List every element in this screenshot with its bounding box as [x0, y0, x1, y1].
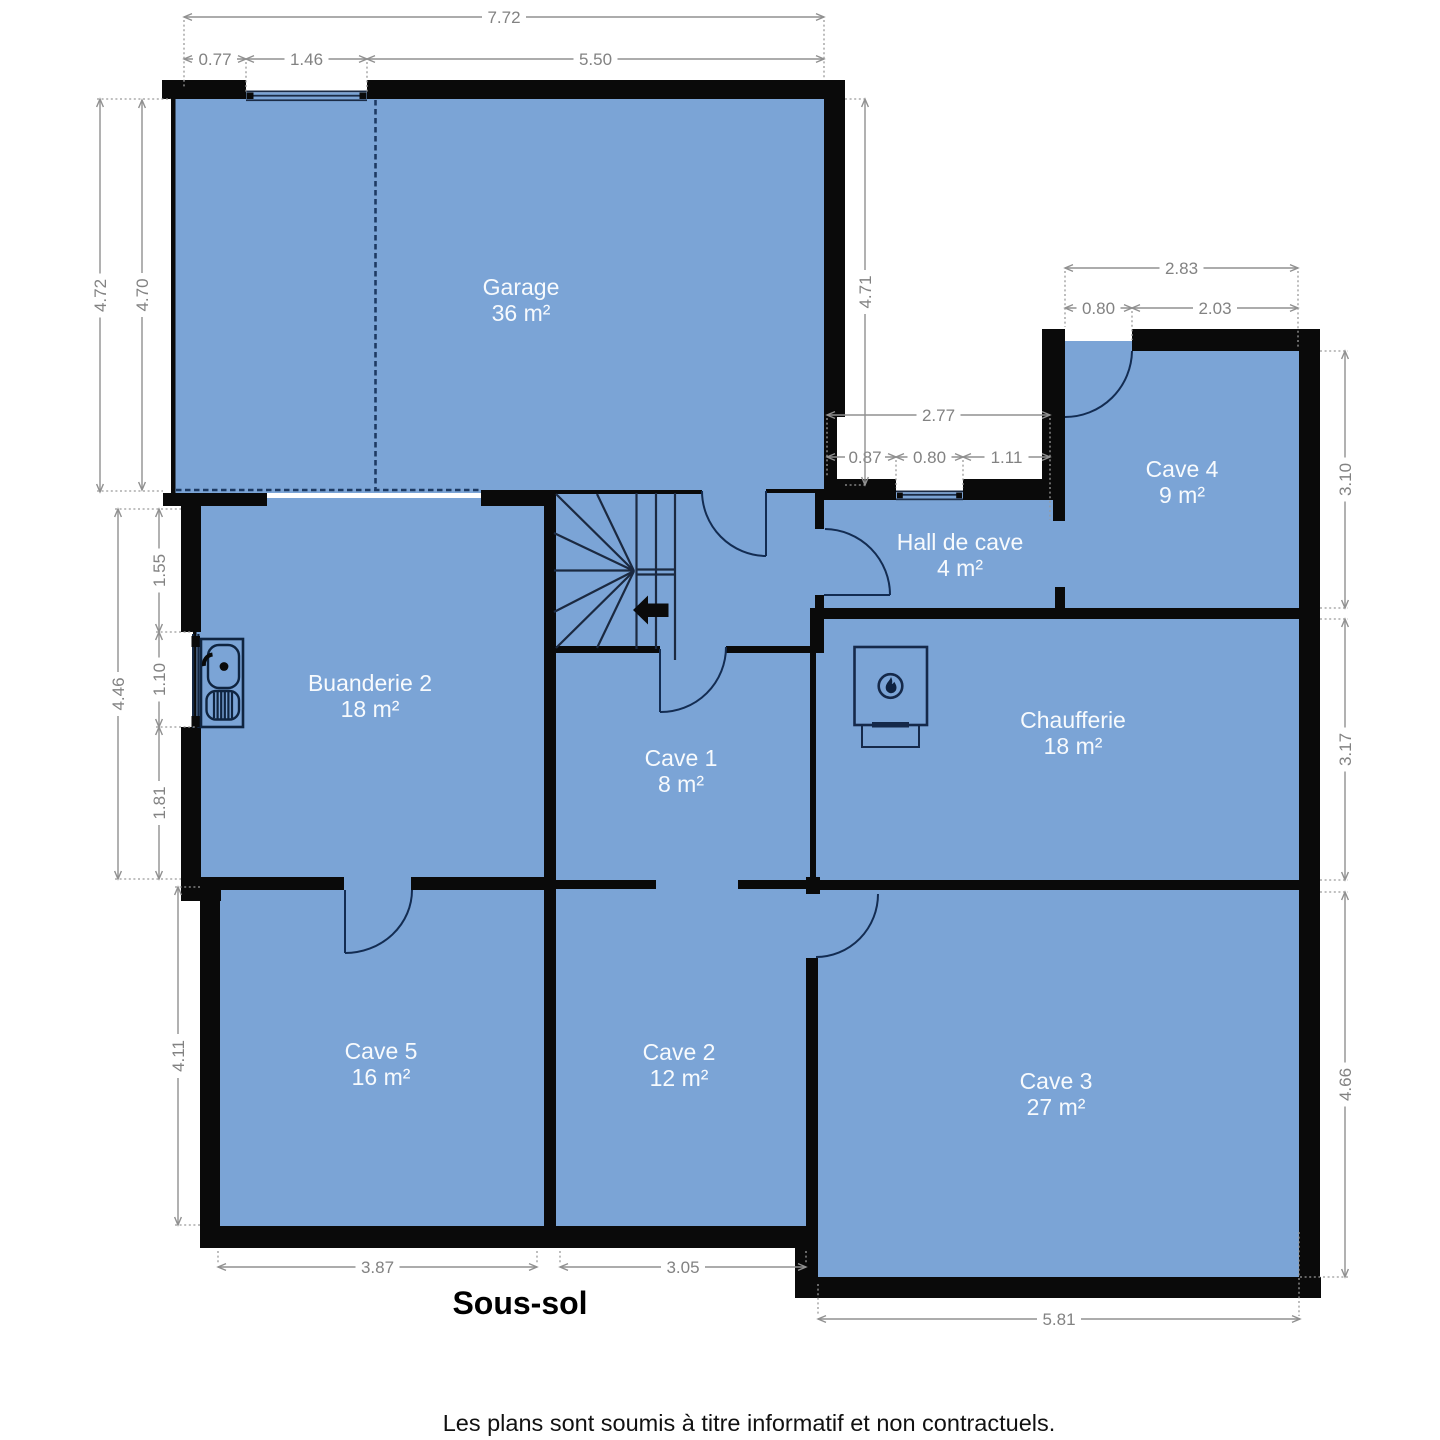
- svg-text:3.10: 3.10: [1336, 463, 1355, 496]
- svg-text:4.66: 4.66: [1336, 1068, 1355, 1101]
- svg-text:27 m²: 27 m²: [1027, 1094, 1086, 1120]
- svg-text:Chaufferie: Chaufferie: [1020, 707, 1126, 733]
- svg-text:Buanderie 2: Buanderie 2: [308, 670, 432, 696]
- svg-text:16 m²: 16 m²: [352, 1064, 411, 1090]
- svg-text:18 m²: 18 m²: [1044, 733, 1103, 759]
- svg-text:0.80: 0.80: [913, 448, 946, 467]
- svg-text:4.72: 4.72: [91, 279, 110, 312]
- svg-text:Garage: Garage: [483, 274, 560, 300]
- svg-text:18 m²: 18 m²: [341, 696, 400, 722]
- svg-text:0.80: 0.80: [1082, 299, 1115, 318]
- svg-text:Cave 1: Cave 1: [645, 745, 718, 771]
- svg-text:1.10: 1.10: [150, 663, 169, 696]
- svg-text:4.71: 4.71: [856, 275, 875, 308]
- svg-text:5.81: 5.81: [1042, 1310, 1075, 1329]
- svg-text:3.17: 3.17: [1336, 733, 1355, 766]
- svg-text:4.70: 4.70: [133, 278, 152, 311]
- svg-text:0.77: 0.77: [198, 50, 231, 69]
- svg-text:12 m²: 12 m²: [650, 1065, 709, 1091]
- svg-text:Cave 5: Cave 5: [345, 1038, 418, 1064]
- svg-text:3.05: 3.05: [666, 1258, 699, 1277]
- svg-text:8 m²: 8 m²: [658, 771, 704, 797]
- svg-text:4.46: 4.46: [109, 677, 128, 710]
- svg-text:Hall de cave: Hall de cave: [897, 529, 1024, 555]
- svg-text:1.55: 1.55: [150, 554, 169, 587]
- svg-text:1.46: 1.46: [290, 50, 323, 69]
- svg-text:7.72: 7.72: [487, 8, 520, 27]
- svg-text:1.11: 1.11: [991, 448, 1023, 467]
- svg-text:1.81: 1.81: [150, 786, 169, 819]
- svg-text:Sous-sol: Sous-sol: [452, 1285, 587, 1321]
- svg-text:36 m²: 36 m²: [492, 300, 551, 326]
- svg-text:Cave 3: Cave 3: [1020, 1068, 1093, 1094]
- svg-text:2.83: 2.83: [1165, 259, 1198, 278]
- svg-text:4 m²: 4 m²: [937, 555, 983, 581]
- svg-text:Cave 4: Cave 4: [1146, 456, 1219, 482]
- svg-text:5.50: 5.50: [579, 50, 612, 69]
- svg-text:Cave 2: Cave 2: [643, 1039, 716, 1065]
- svg-text:Les plans sont soumis à titre: Les plans sont soumis à titre informatif…: [443, 1410, 1056, 1436]
- svg-text:3.87: 3.87: [361, 1258, 394, 1277]
- svg-text:2.77: 2.77: [922, 406, 955, 425]
- svg-text:9 m²: 9 m²: [1159, 482, 1205, 508]
- svg-text:4.11: 4.11: [169, 1040, 188, 1072]
- svg-text:2.03: 2.03: [1198, 299, 1231, 318]
